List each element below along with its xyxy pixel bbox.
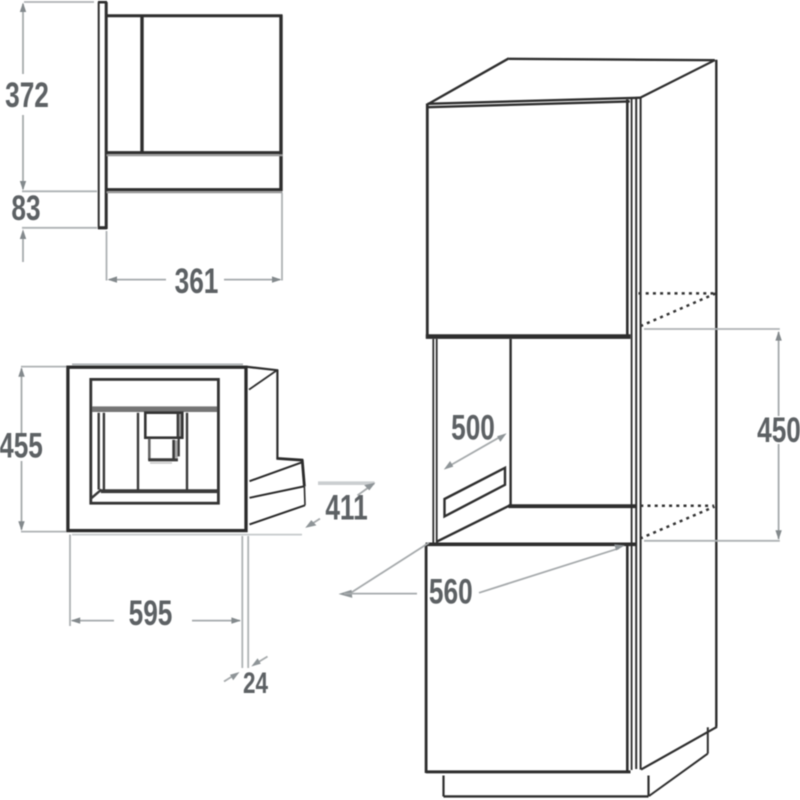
svg-text:595: 595 xyxy=(129,593,173,633)
svg-text:361: 361 xyxy=(175,261,219,301)
svg-text:372: 372 xyxy=(5,75,49,115)
svg-text:500: 500 xyxy=(451,408,495,448)
svg-text:24: 24 xyxy=(243,666,268,700)
svg-text:455: 455 xyxy=(0,426,43,466)
svg-text:411: 411 xyxy=(325,488,367,528)
svg-text:83: 83 xyxy=(11,188,40,228)
svg-text:560: 560 xyxy=(429,572,473,612)
svg-text:450: 450 xyxy=(757,410,800,450)
